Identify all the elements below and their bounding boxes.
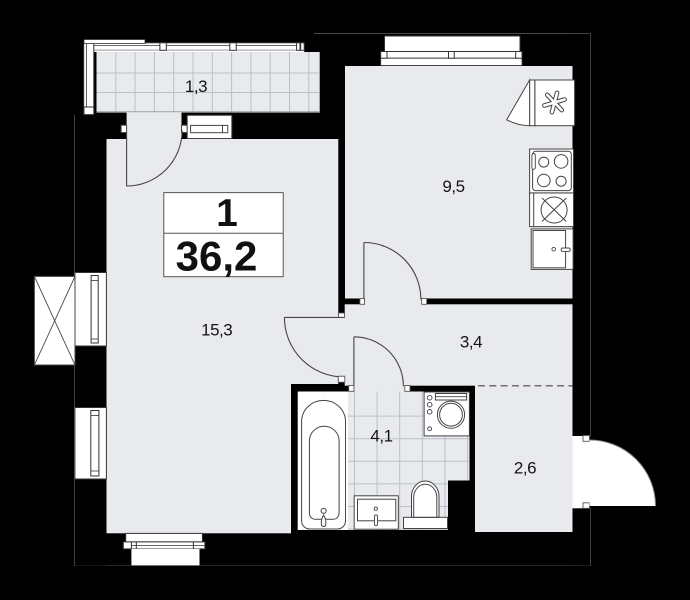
svg-text:4,1: 4,1 bbox=[370, 427, 392, 446]
svg-text:9,5: 9,5 bbox=[442, 177, 464, 196]
svg-text:15,3: 15,3 bbox=[201, 321, 232, 340]
svg-text:1,3: 1,3 bbox=[185, 77, 207, 96]
svg-text:2,6: 2,6 bbox=[514, 459, 536, 478]
svg-text:3,4: 3,4 bbox=[460, 333, 482, 352]
svg-text:1: 1 bbox=[216, 192, 238, 235]
svg-text:36,2: 36,2 bbox=[176, 232, 258, 279]
